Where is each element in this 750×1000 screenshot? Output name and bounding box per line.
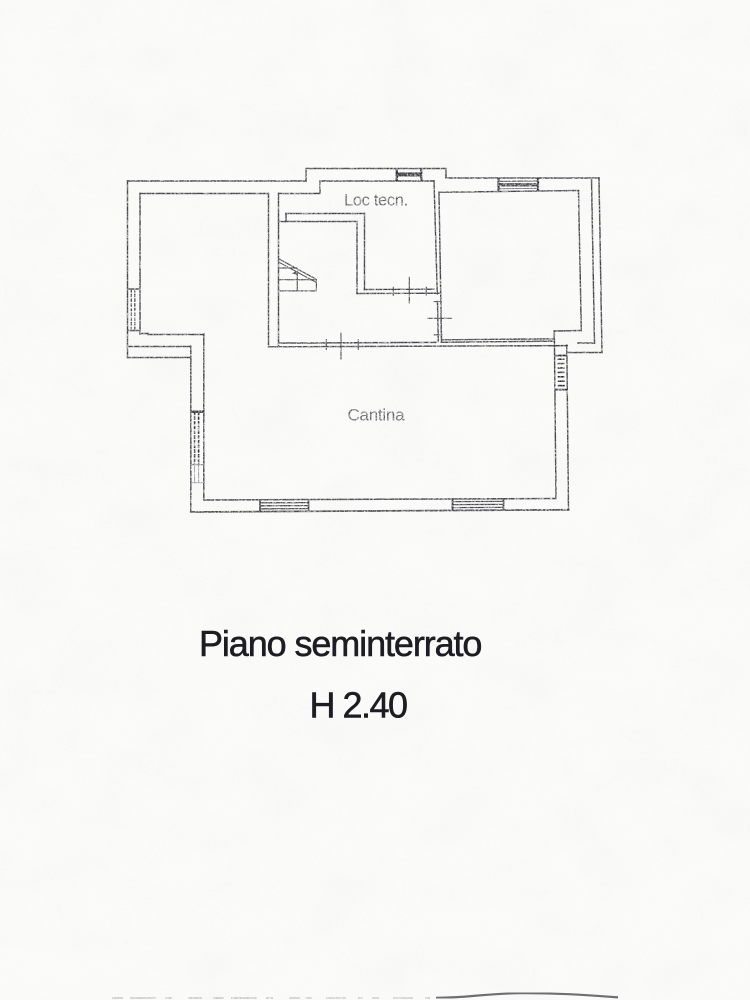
svg-text:H 2.40: H 2.40 <box>310 685 408 726</box>
svg-text:Cantina: Cantina <box>348 406 406 425</box>
svg-text:Piano seminterrato: Piano seminterrato <box>199 623 481 664</box>
svg-text:Loc tecn.: Loc tecn. <box>344 192 408 210</box>
